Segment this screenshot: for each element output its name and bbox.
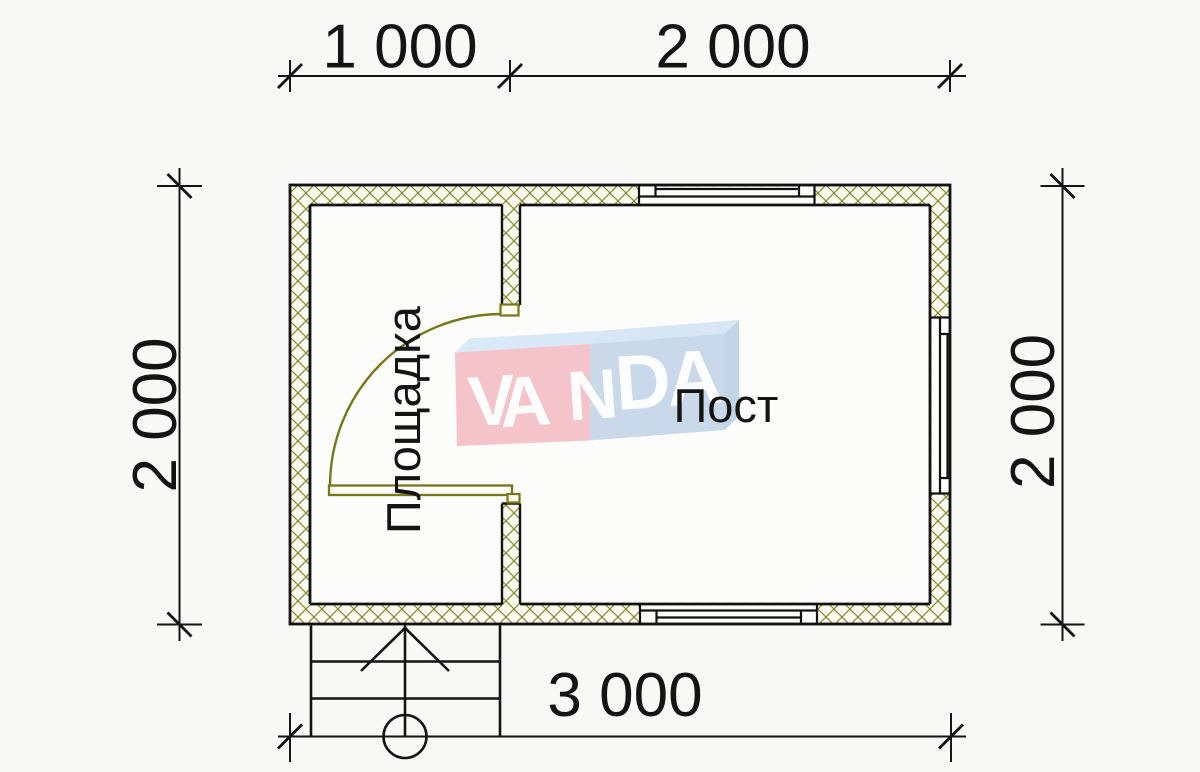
- svg-text:2 000: 2 000: [655, 13, 810, 82]
- svg-text:2 000: 2 000: [999, 334, 1068, 489]
- svg-text:Площадка: Площадка: [377, 305, 430, 534]
- svg-text:1 000: 1 000: [322, 13, 477, 82]
- svg-text:3 000: 3 000: [547, 661, 702, 730]
- svg-text:N: N: [565, 354, 621, 435]
- svg-text:A: A: [497, 361, 554, 443]
- svg-text:Пост: Пост: [674, 379, 779, 432]
- svg-text:2 000: 2 000: [121, 337, 190, 492]
